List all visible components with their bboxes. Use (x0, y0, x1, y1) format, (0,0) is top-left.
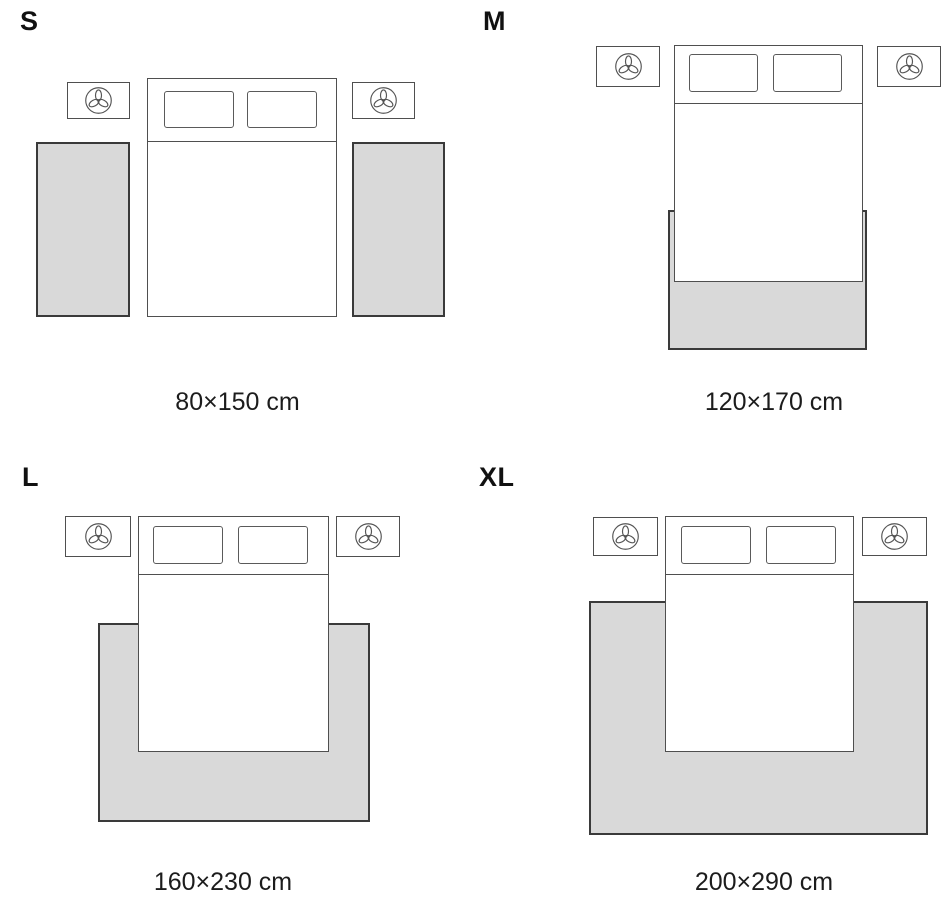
nightstand-right (336, 516, 400, 557)
size-caption-xl: 200×290 cm (564, 869, 950, 897)
size-variant-xl: XL 200×290 cm (475, 450, 950, 900)
nightstand-left (65, 516, 131, 557)
plant-icon (895, 52, 924, 81)
headboard (675, 46, 862, 104)
size-caption-m: 120×170 cm (574, 389, 950, 417)
size-variant-s: S 80×150 cm (0, 0, 475, 450)
headboard (139, 517, 328, 575)
nightstand-left (593, 517, 658, 556)
pillow-left (153, 526, 223, 564)
pillow-left (689, 54, 758, 92)
bed (665, 516, 854, 752)
variant-letter-xl: XL (479, 464, 515, 491)
headboard (666, 517, 853, 575)
plant-icon (614, 52, 643, 81)
rug-size-guide: S 80×150 cm M (0, 0, 950, 900)
nightstand-right (352, 82, 415, 119)
size-caption-l: 160×230 cm (23, 869, 423, 897)
plant-icon (880, 522, 909, 551)
nightstand-left (596, 46, 660, 87)
rug-right-runner (352, 142, 445, 317)
plant-icon (354, 522, 383, 551)
plant-icon (611, 522, 640, 551)
plant-icon (369, 86, 398, 115)
plant-icon (84, 522, 113, 551)
bed (138, 516, 329, 752)
pillow-right (766, 526, 836, 564)
rug-left-runner (36, 142, 130, 317)
size-variant-l: L 160×230 cm (0, 450, 475, 900)
variant-letter-s: S (20, 8, 39, 35)
nightstand-right (862, 517, 927, 556)
headboard (148, 79, 336, 142)
pillow-right (247, 91, 317, 128)
size-variant-m: M 120×170 cm (475, 0, 950, 450)
variant-letter-l: L (22, 464, 39, 491)
nightstand-right (877, 46, 941, 87)
plant-icon (84, 86, 113, 115)
nightstand-left (67, 82, 130, 119)
bed (147, 78, 337, 317)
pillow-left (164, 91, 234, 128)
size-caption-s: 80×150 cm (0, 389, 475, 417)
bed (674, 45, 863, 282)
variant-letter-m: M (483, 8, 506, 35)
pillow-right (773, 54, 842, 92)
pillow-right (238, 526, 308, 564)
pillow-left (681, 526, 751, 564)
